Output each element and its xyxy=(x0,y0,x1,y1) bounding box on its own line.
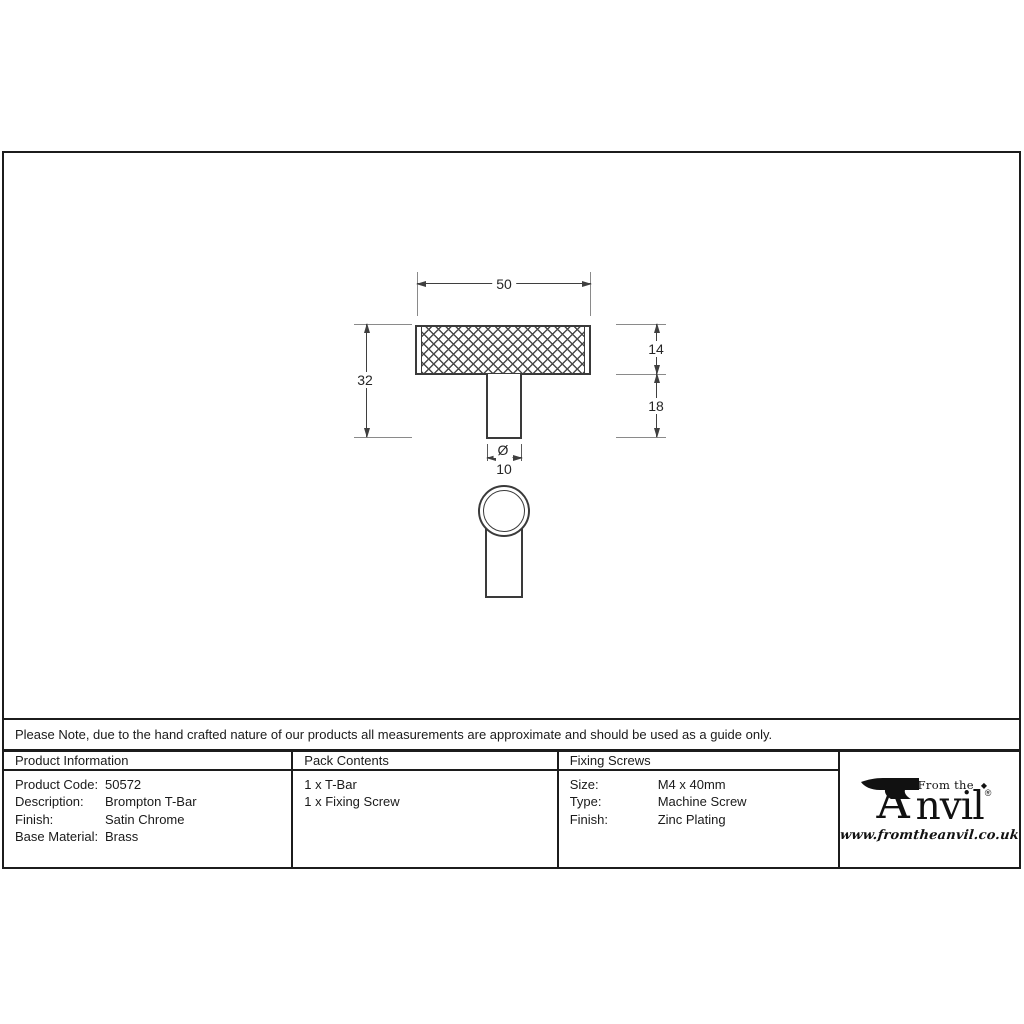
knurl-pattern xyxy=(421,327,585,373)
row-value: M4 x 40mm xyxy=(658,776,726,793)
brand-column: A From the ◆ nvil® www.fromtheanvil.co.u… xyxy=(840,752,1019,867)
row-value: Zinc Plating xyxy=(658,811,726,828)
extension-line-width-right xyxy=(590,272,591,316)
anvil-icon xyxy=(860,777,920,799)
dimension-label-diameter-symbol: Ø xyxy=(494,442,513,458)
arrowhead-icon xyxy=(364,428,370,438)
brand-rest: nvil® xyxy=(916,789,990,825)
spec-table: Product Information Product Code: 50572 … xyxy=(4,749,1019,867)
row-label: Finish: xyxy=(570,811,658,828)
tbar-front-view xyxy=(415,325,591,375)
row-label: Product Code: xyxy=(15,776,105,793)
row-label: Description: xyxy=(15,793,105,810)
logo-wordmark: A From the ◆ nvil® xyxy=(840,778,1019,825)
product-info-body: Product Code: 50572 Description: Brompto… xyxy=(4,771,291,845)
dimension-label-height: 32 xyxy=(353,372,377,388)
logo-text-block: From the ◆ nvil® xyxy=(916,778,990,825)
fixing-screws-column: Fixing Screws Size: M4 x 40mm Type: Mach… xyxy=(559,752,840,867)
note-row: Please Note, due to the hand crafted nat… xyxy=(4,718,1019,749)
tbar-end-view-circle xyxy=(478,485,530,537)
dimension-label-bar-height: 14 xyxy=(644,341,668,357)
list-item: 1 x Fixing Screw xyxy=(304,793,556,810)
pack-contents-header: Pack Contents xyxy=(293,752,556,771)
dimension-label-diameter-value: 10 xyxy=(492,461,516,477)
tbar-end-view-inner-ring xyxy=(483,490,526,533)
list-item: 1 x T-Bar xyxy=(304,776,556,793)
row-value: Brompton T-Bar xyxy=(105,793,197,810)
row-label: Size: xyxy=(570,776,658,793)
dimension-label-stem-height: 18 xyxy=(644,398,668,414)
table-row: Base Material: Brass xyxy=(15,828,291,845)
arrowhead-icon xyxy=(513,455,523,461)
row-label: Base Material: xyxy=(15,828,105,845)
row-value: Machine Screw xyxy=(658,793,747,810)
table-row: Finish: Zinc Plating xyxy=(570,811,838,828)
row-label: Finish: xyxy=(15,811,105,828)
pack-contents-column: Pack Contents 1 x T-Bar 1 x Fixing Screw xyxy=(293,752,558,867)
arrowhead-icon xyxy=(582,281,592,287)
row-value: Brass xyxy=(105,828,138,845)
table-row: Size: M4 x 40mm xyxy=(570,776,838,793)
row-label: Type: xyxy=(570,793,658,810)
extension-line-width-left xyxy=(417,272,418,316)
pack-contents-body: 1 x T-Bar 1 x Fixing Screw xyxy=(293,771,556,811)
arrowhead-icon xyxy=(654,373,660,383)
brand-url: www.fromtheanvil.co.uk xyxy=(839,828,1020,843)
anvil-letter-a: A xyxy=(870,779,916,825)
product-info-header: Product Information xyxy=(4,752,291,771)
fixing-screws-header: Fixing Screws xyxy=(559,752,838,771)
technical-drawing: 50 32 14 18 xyxy=(4,153,1019,718)
fixing-screws-body: Size: M4 x 40mm Type: Machine Screw Fini… xyxy=(559,771,838,828)
row-value: Satin Chrome xyxy=(105,811,184,828)
brand-rest-text: nvil xyxy=(916,784,984,829)
row-value: 50572 xyxy=(105,776,141,793)
table-row: Description: Brompton T-Bar xyxy=(15,793,291,810)
arrowhead-icon xyxy=(416,281,426,287)
arrowhead-icon xyxy=(654,428,660,438)
arrowhead-icon xyxy=(654,323,660,333)
table-row: Type: Machine Screw xyxy=(570,793,838,810)
table-row: Finish: Satin Chrome xyxy=(15,811,291,828)
dimension-label-width: 50 xyxy=(492,276,516,292)
note-text: Please Note, due to the hand crafted nat… xyxy=(15,727,772,742)
sheet-frame: 50 32 14 18 xyxy=(2,151,1021,869)
arrowhead-icon xyxy=(364,323,370,333)
table-row: Product Code: 50572 xyxy=(15,776,291,793)
from-the-anvil-logo: A From the ◆ nvil® www.fromtheanvil.co.u… xyxy=(840,778,1019,843)
registered-trademark-icon: ® xyxy=(985,788,991,798)
product-info-column: Product Information Product Code: 50572 … xyxy=(4,752,293,867)
spec-sheet-page: { "drawing": { "dims": { "width": "50", … xyxy=(0,0,1024,1024)
tbar-stem-front-view xyxy=(486,374,522,439)
